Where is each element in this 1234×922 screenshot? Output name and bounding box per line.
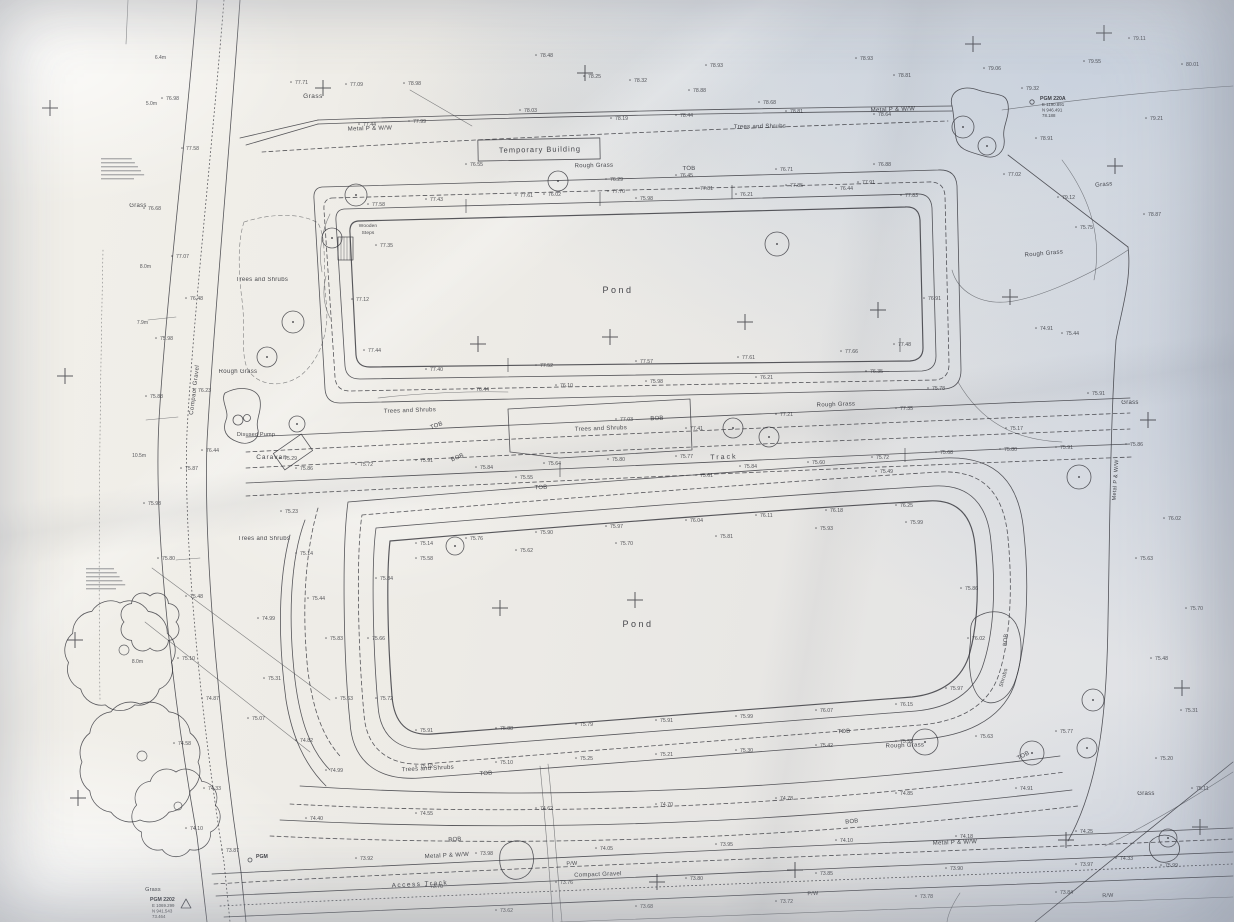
tree-trunk-circle [119, 645, 129, 655]
spot-height-point [775, 900, 777, 902]
map-label: Pond [602, 285, 633, 295]
photographed-survey-plan: 77.7177.0978.9878.4878.2578.3278.9378.88… [0, 0, 1234, 922]
spot-height-point [415, 542, 417, 544]
grid-cross [1192, 819, 1208, 835]
spot-height-point [605, 178, 607, 180]
spot-height-point [257, 617, 259, 619]
spot-height-value: 75.99 [740, 714, 753, 720]
spot-height-value: 78.32 [634, 78, 647, 84]
spot-height-point [1143, 213, 1145, 215]
map-label: Trees and Shrubs [575, 425, 627, 433]
spot-height-value: 75.48 [1155, 656, 1168, 662]
spot-height-point [295, 552, 297, 554]
tree-height-label: 8.0m [132, 659, 143, 665]
spot-height-point [775, 797, 777, 799]
spot-height-value: 77.43 [430, 197, 443, 203]
illegible-note-line [101, 158, 132, 159]
spot-height-value: 77.07 [176, 254, 189, 260]
map-label: Metal P & W/W [348, 125, 393, 132]
spot-height-value: 78.88 [693, 88, 706, 94]
spot-height-point [695, 474, 697, 476]
spot-height-value: 77.35 [380, 243, 393, 249]
north-boundary [240, 90, 952, 161]
spot-height-value: 76.25 [900, 503, 913, 509]
spot-height-point [755, 514, 757, 516]
spot-height-value: 75.70 [620, 541, 633, 547]
spot-height-point [1163, 517, 1165, 519]
illegible-note-line [86, 580, 122, 581]
spot-height-point [145, 395, 147, 397]
spot-height-point [840, 350, 842, 352]
station-coordinate-line: N 941.543 [152, 909, 173, 914]
tree-canopy-outline [132, 769, 220, 857]
spot-height-value: 76.35 [870, 369, 883, 375]
wooden-steps-hatch [341, 237, 350, 260]
spot-height-value: 75.48 [190, 594, 203, 600]
spot-height-point [857, 181, 859, 183]
spot-height-point [900, 194, 902, 196]
spot-height-point [715, 843, 717, 845]
band-line-2 [246, 413, 1130, 452]
map-label: Rough Grass [575, 163, 614, 170]
station-triangle-pgm2202 [181, 899, 191, 908]
spot-height-point [415, 557, 417, 559]
spot-height-point [495, 761, 497, 763]
tree-trunk-circle [174, 802, 182, 810]
top-pond-water-edge [350, 207, 923, 367]
spot-height-point [1075, 226, 1077, 228]
tree-centre-dot [1086, 747, 1088, 749]
spot-height-value: 75.84 [480, 465, 493, 471]
spot-height-point [290, 81, 292, 83]
spot-height-point [905, 521, 907, 523]
spot-height-value: 74.99 [330, 768, 343, 774]
spot-height-value: 75.86 [965, 586, 978, 592]
spot-height-point [960, 587, 962, 589]
spot-height-value: 73.97 [1080, 862, 1093, 868]
north-east-corner [951, 86, 1233, 841]
illegible-note-line [101, 174, 144, 175]
spot-height-value: 75.88 [150, 394, 163, 400]
spot-height-point [543, 462, 545, 464]
spot-height-value: 77.83 [905, 193, 918, 199]
spot-height-point [715, 535, 717, 537]
pond-west-arc-3 [280, 535, 326, 786]
station-dot-pgm [248, 858, 252, 862]
spot-height-point [785, 184, 787, 186]
spot-height-value: 75.23 [285, 509, 298, 515]
pump-circle-2 [244, 415, 251, 422]
tree-centre-dot [1092, 699, 1094, 701]
spot-height-point [1015, 787, 1017, 789]
spot-height-point [645, 380, 647, 382]
spot-height-value: 76.11 [760, 513, 773, 519]
spot-height-value: 80.01 [1186, 62, 1199, 68]
spot-height-value: 76.10 [560, 383, 573, 389]
spot-height-value: 74.62 [540, 806, 553, 812]
spot-height-value: 76.04 [690, 518, 703, 524]
spot-height-point [1145, 117, 1147, 119]
spot-height-point [583, 75, 585, 77]
spot-height-value: 73.68 [640, 904, 653, 910]
spot-height-point [895, 740, 897, 742]
spot-height-point [185, 595, 187, 597]
grid-cross [70, 790, 86, 806]
spot-height-value: 74.33 [1120, 856, 1133, 862]
spot-height-value: 75.91 [420, 458, 433, 464]
spot-height-point [1180, 709, 1182, 711]
spot-height-value: 75.58 [420, 556, 433, 562]
spot-height-point [875, 470, 877, 472]
spot-height-value: 77.85 [790, 183, 803, 189]
spot-height-point [1125, 443, 1127, 445]
spot-height-value: 73.87 [226, 848, 239, 854]
spot-height-point [825, 509, 827, 511]
tree-canopy-outline [80, 702, 200, 822]
spot-height-value: 75.44 [1066, 331, 1079, 337]
spot-height-point [873, 163, 875, 165]
spot-height-value: 76.88 [878, 162, 891, 168]
spot-height-point [1055, 446, 1057, 448]
spot-height-value: 77.21 [780, 412, 793, 418]
spot-height-point [475, 852, 477, 854]
map-label: Disused Pump [237, 432, 275, 438]
spot-height-point [610, 117, 612, 119]
tree-centre-dot [986, 145, 988, 147]
south-contour-1 [300, 756, 1060, 793]
spot-height-value: 77.66 [845, 349, 858, 355]
spot-height-value: 75.81 [720, 534, 733, 540]
spot-height-point [155, 337, 157, 339]
spot-height-value: 75.99 [910, 520, 923, 526]
spot-height-point [893, 343, 895, 345]
spot-height-point [363, 349, 365, 351]
spot-height-point [815, 744, 817, 746]
spot-height-point [263, 677, 265, 679]
spot-height-point [755, 376, 757, 378]
tree-height-labels: 6.4m5.0m8.0m7.9m10.5m8.0m [132, 55, 166, 665]
spot-height-value: 75.91 [1092, 391, 1105, 397]
spot-height-point [688, 89, 690, 91]
spot-height-value: 75.25 [580, 756, 593, 762]
spot-height-value: 78.81 [790, 109, 803, 115]
grid-cross [492, 600, 508, 616]
grid-cross [1107, 158, 1123, 174]
spot-height-value: 75.68 [940, 450, 953, 456]
spot-height-value: 75.98 [640, 196, 653, 202]
map-label: Trees and Shrubs [384, 407, 436, 415]
spot-height-point [1087, 392, 1089, 394]
tree-canopy-outline [65, 601, 175, 711]
tree-height-label: 5.0m [146, 101, 157, 107]
pond-west-arc-2 [305, 508, 340, 756]
spot-height-value: 75.21 [660, 752, 673, 758]
spot-height-point [345, 83, 347, 85]
spot-height-point [607, 458, 609, 460]
spot-height-point [685, 519, 687, 521]
spot-height-value: 74.91 [1020, 786, 1033, 792]
spot-height-value: 77.61 [520, 193, 533, 199]
spot-height-point [629, 79, 631, 81]
spot-height-point [655, 803, 657, 805]
spot-height-point [307, 597, 309, 599]
ne-pond-blob [951, 88, 1008, 157]
spot-height-point [999, 448, 1001, 450]
spot-height-point [1160, 864, 1162, 866]
map-label: Wooden [359, 223, 378, 229]
spot-height-value: 75.83 [330, 636, 343, 642]
spot-height-value: 75.61 [700, 473, 713, 479]
spot-height-point [201, 449, 203, 451]
spot-height-point [983, 67, 985, 69]
spot-height-value: 77.81 [700, 186, 713, 192]
tree-centre-dot [768, 436, 770, 438]
spot-height-point [815, 527, 817, 529]
spot-height-value: 78.25 [588, 74, 601, 80]
spot-height-point [1021, 87, 1023, 89]
spot-height-point [1128, 37, 1130, 39]
spot-height-point [171, 255, 173, 257]
spot-height-point [595, 847, 597, 849]
spot-height-point [915, 895, 917, 897]
illegible-note [101, 158, 144, 179]
spot-height-point [185, 827, 187, 829]
spot-height-value: 75.55 [520, 475, 533, 481]
spot-height-value: 75.72 [360, 462, 373, 468]
map-label: Rough Grass [219, 369, 258, 375]
spot-height-point [221, 849, 223, 851]
shrubs-knoll [969, 612, 1021, 703]
spot-height-point [475, 466, 477, 468]
spot-height-value: 77.61 [742, 355, 755, 361]
tree-centre-dot [1031, 752, 1033, 754]
drain-line-2 [540, 766, 553, 922]
map-label: BOB [650, 416, 663, 422]
tree-height-label: 10.5m [132, 453, 146, 459]
spot-height-point [1181, 63, 1183, 65]
spot-height-value: 75.79 [580, 722, 593, 728]
spot-height-value: 73.84 [1060, 890, 1073, 896]
tree-centre-dot [557, 180, 559, 182]
spot-height-value: 75.62 [520, 548, 533, 554]
spot-height-value: 75.30 [740, 748, 753, 754]
station-coordinate-line: E 1069.299 [152, 903, 175, 908]
spot-height-value: 79.32 [1026, 86, 1039, 92]
spot-height-value: 76.91 [928, 296, 941, 302]
spot-height-value: 75.63 [340, 696, 353, 702]
spot-height-point [775, 413, 777, 415]
spot-height-point [535, 807, 537, 809]
spot-height-point [408, 120, 410, 122]
spot-height-value: 75.86 [300, 466, 313, 472]
map-label: Rough Grass [886, 742, 925, 749]
station-coordinate-line: N 946.491 [1042, 108, 1063, 113]
spot-height-point [143, 502, 145, 504]
tree-centre-dot [962, 126, 964, 128]
spot-height-value: 75.31 [1185, 708, 1198, 714]
spot-height-value: 74.05 [600, 846, 613, 852]
spot-height-point [425, 198, 427, 200]
spot-height-point [157, 557, 159, 559]
spot-height-point [335, 697, 337, 699]
spot-height-value: 76.44 [476, 387, 489, 393]
spot-height-value: 77.58 [186, 146, 199, 152]
spot-height-value: 78.87 [1148, 212, 1161, 218]
spot-height-point [735, 193, 737, 195]
tree-symbols [257, 116, 1177, 847]
spot-height-value: 77.09 [350, 82, 363, 88]
spot-height-value: 78.93 [860, 56, 873, 62]
se-corner-curve [1105, 772, 1233, 846]
top-pond-bank-dashed [324, 182, 949, 391]
spot-height-point [1083, 60, 1085, 62]
spot-height-point [415, 729, 417, 731]
spot-height-point [739, 465, 741, 467]
spot-height-point [351, 298, 353, 300]
spot-height-value: 75.78 [932, 386, 945, 392]
map-label: Grass [1121, 400, 1139, 406]
spot-height-value: 76.02 [548, 192, 561, 198]
spot-height-point [675, 174, 677, 176]
lane-west-line [158, 0, 207, 922]
access-track-south [224, 876, 1233, 917]
spot-height-point [535, 54, 537, 56]
spot-height-value: 76.68 [148, 206, 161, 212]
grid-cross [1002, 289, 1018, 305]
spot-height-point [737, 356, 739, 358]
spot-height-value: 73.95 [720, 842, 733, 848]
spot-height-point [895, 703, 897, 705]
grid-cross [57, 368, 73, 384]
spot-height-point [855, 57, 857, 59]
spot-height-value: 76.98 [166, 96, 179, 102]
spot-height-value: 78.19 [615, 116, 628, 122]
bottom-pond-bank-outer [344, 458, 1027, 778]
spot-height-value: 75.80 [612, 457, 625, 463]
sheet-edge-line [126, 0, 128, 44]
spot-height-point [893, 74, 895, 76]
trees-shrubs-west-polygon [239, 215, 327, 383]
spot-height-point [675, 455, 677, 457]
illegible-note-line [86, 572, 117, 573]
spot-height-value: 75.84 [744, 464, 757, 470]
spot-height-value: 76.07 [820, 708, 833, 714]
north-fence-upper [318, 106, 952, 120]
spot-height-point [367, 203, 369, 205]
station-coordinate-line: 73.464 [152, 914, 166, 919]
spot-height-point [655, 719, 657, 721]
tree-height-label: 8.0m [140, 264, 151, 270]
spot-height-value: 75.42 [820, 743, 833, 749]
spot-height-point [835, 187, 837, 189]
tree-centre-dot [331, 237, 333, 239]
tree-centre-dot [1167, 837, 1169, 839]
spot-height-value: 75.76 [470, 536, 483, 542]
spot-height-point [543, 193, 545, 195]
spot-height-value: 73.92 [360, 856, 373, 862]
spot-height-point [935, 451, 937, 453]
spot-height-value: 75.98 [160, 336, 173, 342]
spot-height-value: 73.78 [920, 894, 933, 900]
map-label: Metal P & W/W [1112, 459, 1121, 501]
spot-height-point [871, 456, 873, 458]
spot-height-point [295, 739, 297, 741]
grid-cross [470, 336, 486, 352]
spot-height-point [635, 197, 637, 199]
spot-height-value: 78.03 [524, 108, 537, 114]
spot-height-point [515, 476, 517, 478]
top-pond [314, 170, 961, 403]
spot-height-value: 78.93 [710, 63, 723, 69]
illegible-note-line [101, 178, 134, 179]
spot-height-point [955, 835, 957, 837]
spot-height-point [695, 187, 697, 189]
south-contour-4 [270, 806, 1078, 841]
illegible-note-line [86, 568, 114, 569]
spot-height-point [927, 387, 929, 389]
spot-height-value: 77.99 [413, 119, 426, 125]
spot-height-point [607, 190, 609, 192]
spot-height-point [575, 757, 577, 759]
spot-height-value: 74.58 [178, 741, 191, 747]
spot-height-point [685, 427, 687, 429]
spot-height-value: 76.02 [972, 636, 985, 642]
spot-height-point [685, 877, 687, 879]
spot-height-value: 75.99 [1165, 863, 1178, 869]
spot-height-point [367, 637, 369, 639]
map-label: Grass [303, 93, 323, 100]
grid-cross [787, 862, 803, 878]
spot-height-value: 74.85 [900, 791, 913, 797]
spot-height-point [1191, 787, 1193, 789]
spot-height-point [1075, 830, 1077, 832]
spot-height-point [375, 244, 377, 246]
spot-height-value: 75.72 [876, 455, 889, 461]
pump-circle-1 [233, 415, 243, 425]
spot-height-value: 75.77 [1060, 729, 1073, 735]
bottom-pond-bank-dashed [358, 472, 1010, 764]
spot-height-value: 75.63 [980, 734, 993, 740]
station-name: PGM [256, 854, 268, 860]
spot-height-value: 75.66 [372, 636, 385, 642]
spot-height-value: 78.98 [408, 81, 421, 87]
map-label: Trees and Shrubs [238, 536, 290, 542]
spot-height-value: 75.97 [610, 524, 623, 530]
spot-height-value: 74.33 [208, 786, 221, 792]
map-label: Grass [129, 203, 147, 209]
spot-height-point [675, 114, 677, 116]
map-label: TOB [837, 729, 850, 736]
spot-height-value: 76.23 [198, 388, 211, 394]
spot-height-point [923, 297, 925, 299]
tree-height-label: 7.9m [137, 320, 148, 326]
spot-height-point [835, 839, 837, 841]
spot-height-value: 77.40 [430, 367, 443, 373]
tree-trunk-circle [137, 751, 147, 761]
spot-height-point [185, 297, 187, 299]
spot-height-point [1035, 327, 1037, 329]
spot-height-point [403, 82, 405, 84]
bottom-pond-bank-1 [373, 486, 994, 749]
spot-height-value: 75.86 [1130, 442, 1143, 448]
spot-height-value: 75.11 [1196, 786, 1209, 792]
bottom-edge-line [560, 897, 1233, 922]
tree-centre-dot [292, 321, 294, 323]
spot-height-point [465, 537, 467, 539]
spot-height-point [1075, 863, 1077, 865]
spot-height-value: 75.72 [380, 696, 393, 702]
illegible-note-line [86, 576, 120, 577]
